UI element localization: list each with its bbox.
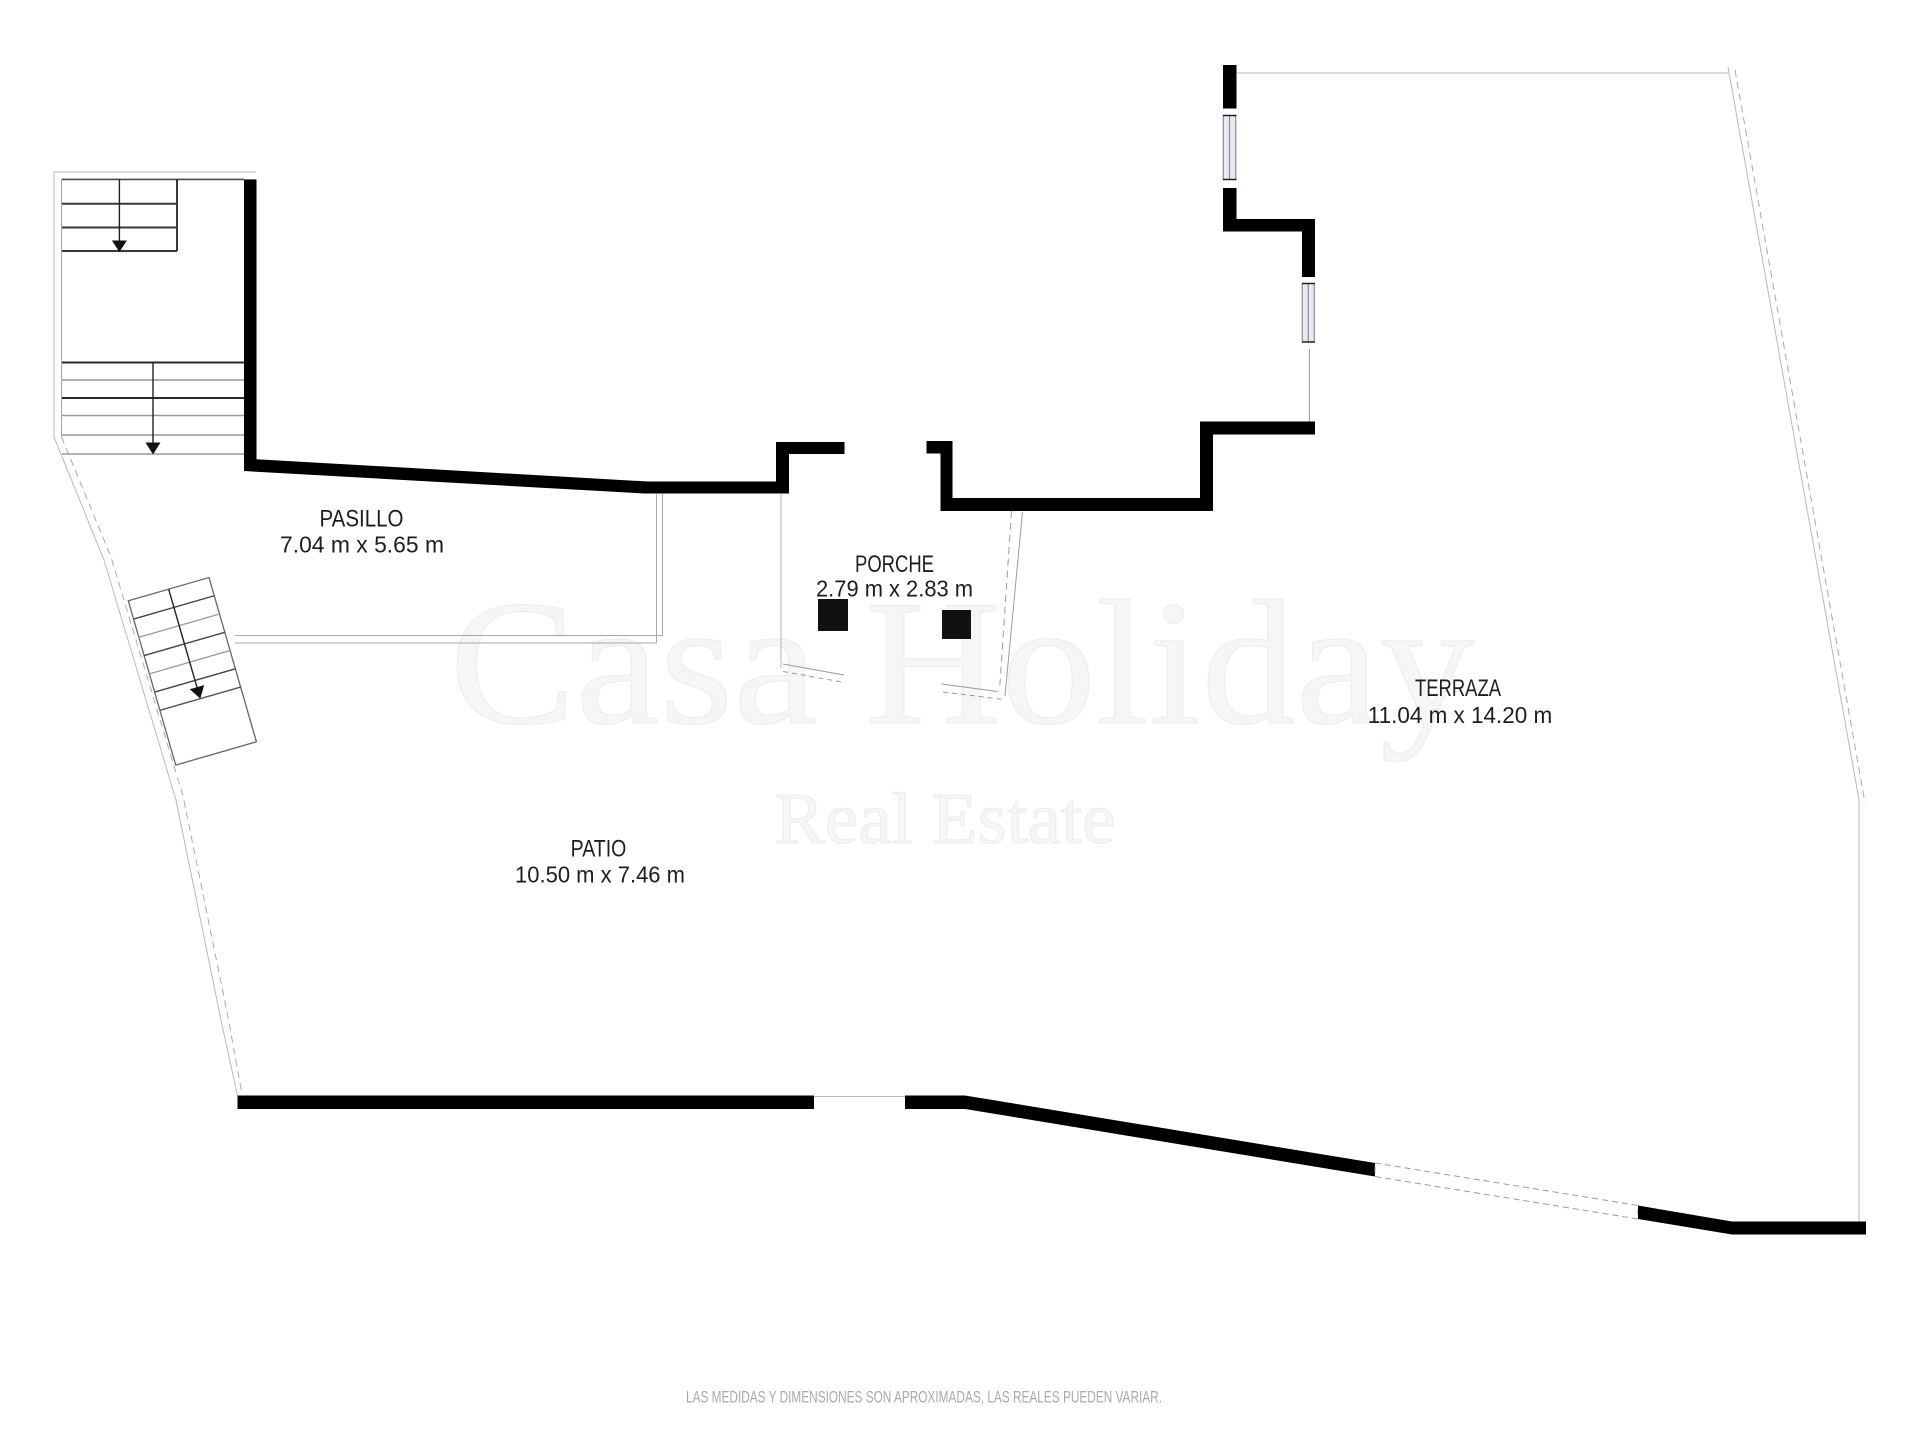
svg-text:PATIO: PATIO (571, 835, 627, 862)
svg-text:Real Estate: Real Estate (775, 778, 1116, 859)
svg-text:7.04 m x 5.65 m: 7.04 m x 5.65 m (280, 531, 444, 557)
svg-text:PASILLO: PASILLO (320, 505, 404, 532)
svg-text:2.79 m x 2.83 m: 2.79 m x 2.83 m (816, 576, 973, 602)
svg-text:11.04 m x 14.20 m: 11.04 m x 14.20 m (1368, 702, 1553, 728)
svg-text:LAS MEDIDAS Y DIMENSIONES SON: LAS MEDIDAS Y DIMENSIONES SON APROXIMADA… (686, 1389, 1162, 1407)
svg-text:TERRAZA: TERRAZA (1415, 675, 1501, 702)
svg-text:PORCHE: PORCHE (855, 551, 934, 578)
svg-text:10.50 m x 7.46 m: 10.50 m x 7.46 m (515, 862, 685, 888)
